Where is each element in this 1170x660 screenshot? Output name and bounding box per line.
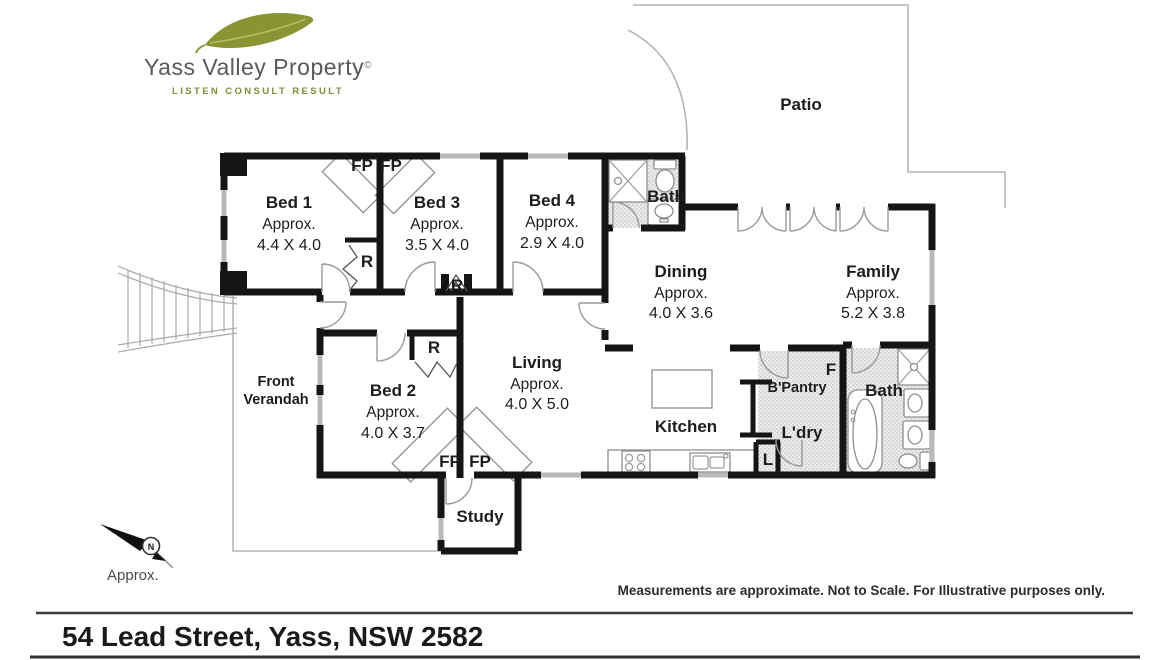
room-approx-living: Approx. bbox=[510, 376, 563, 393]
marker-robe-bed1: R bbox=[361, 252, 373, 271]
room-size-living: 4.0 X 5.0 bbox=[505, 396, 569, 413]
room-label-bath-rear: Bath bbox=[865, 381, 903, 400]
vanity-bowl-rear bbox=[908, 394, 922, 412]
french-doors-3 bbox=[840, 207, 888, 231]
room-label-kitchen: Kitchen bbox=[655, 417, 717, 436]
toilet-bowl-rear bbox=[899, 454, 917, 468]
room-approx-bed3: Approx. bbox=[410, 216, 463, 233]
marker-robe-bed3: R bbox=[451, 276, 463, 295]
marker-fp-bed2: FP bbox=[439, 452, 461, 471]
toilet-tank-front bbox=[654, 160, 676, 169]
agency-logo: Yass Valley Property© LISTEN CONSULT RES… bbox=[144, 13, 372, 97]
room-size-family: 5.2 X 3.8 bbox=[841, 305, 905, 322]
room-label-dining: Dining bbox=[655, 262, 708, 281]
french-doors-2 bbox=[790, 207, 836, 231]
room-label-bed4: Bed 4 bbox=[529, 191, 576, 210]
leaf-icon bbox=[205, 13, 313, 48]
shower-drain-rear bbox=[911, 364, 918, 371]
floor-plan-page: Yass Valley Property© LISTEN CONSULT RES… bbox=[0, 0, 1170, 660]
room-size-bed1: 4.4 X 4.0 bbox=[257, 237, 321, 254]
door-bed1 bbox=[322, 264, 350, 292]
room-label-family: Family bbox=[846, 262, 900, 281]
room-size-bed3: 3.5 X 4.0 bbox=[405, 237, 469, 254]
room-approx-family: Approx. bbox=[846, 285, 899, 302]
door-bed4 bbox=[513, 262, 543, 292]
robe-bifold-bed1 bbox=[343, 245, 357, 291]
door-bed3 bbox=[405, 262, 435, 292]
compass-north-label: N bbox=[148, 542, 155, 552]
room-label-bed2: Bed 2 bbox=[370, 381, 416, 400]
marker-fp-living: FP bbox=[469, 452, 491, 471]
room-size-bed2: 4.0 X 3.7 bbox=[361, 425, 425, 442]
door-bed2 bbox=[377, 333, 405, 361]
room-label-laundry: L'dry bbox=[782, 423, 823, 442]
logo-registered-mark: © bbox=[364, 60, 372, 71]
marker-linen: L bbox=[763, 450, 773, 469]
logo-text: Yass Valley Property© bbox=[144, 54, 372, 80]
marker-fridge: F bbox=[826, 360, 836, 379]
room-label-bed1: Bed 1 bbox=[266, 193, 312, 212]
room-approx-bed2: Approx. bbox=[366, 404, 419, 421]
leaf-stem bbox=[196, 45, 205, 53]
cabinet-bowl-rear bbox=[908, 426, 922, 444]
compass-needle-north bbox=[100, 524, 149, 551]
verandah-steps bbox=[118, 266, 237, 352]
basin-tap-front bbox=[660, 219, 668, 222]
logo-name-text: Yass Valley Property bbox=[144, 54, 364, 80]
room-label-living: Living bbox=[512, 353, 562, 372]
room-approx-bed1: Approx. bbox=[262, 216, 315, 233]
room-size-dining: 4.0 X 3.6 bbox=[649, 305, 713, 322]
corner-pier-nw bbox=[220, 153, 247, 176]
compass-approx-label: Approx. bbox=[107, 567, 159, 584]
shower-drain-front bbox=[615, 178, 622, 185]
marker-robe-bed2: R bbox=[428, 338, 440, 357]
door-entry bbox=[320, 302, 346, 328]
room-size-bed4: 2.9 X 4.0 bbox=[520, 235, 584, 252]
room-label-verandah-line1: Front bbox=[257, 374, 294, 390]
door-living bbox=[579, 303, 605, 329]
french-doors-1 bbox=[738, 207, 786, 231]
compass: N Approx. bbox=[100, 524, 173, 584]
room-label-patio: Patio bbox=[780, 95, 822, 114]
robe-bifold-bed2 bbox=[415, 362, 457, 377]
kitchen-island bbox=[652, 370, 712, 408]
room-label-bath-front: Bath bbox=[647, 187, 685, 206]
bathtub-inner bbox=[853, 399, 877, 469]
disclaimer-text: Measurements are approximate. Not to Sca… bbox=[618, 583, 1105, 598]
basin-bowl-front bbox=[655, 204, 673, 218]
marker-fp-bed1: FP bbox=[351, 156, 373, 175]
door-study bbox=[446, 478, 472, 504]
room-approx-dining: Approx. bbox=[654, 285, 707, 302]
room-approx-bed4: Approx. bbox=[525, 214, 578, 231]
room-label-bed3: Bed 3 bbox=[414, 193, 460, 212]
logo-tagline: LISTEN CONSULT RESULT bbox=[172, 86, 344, 97]
room-label-study: Study bbox=[456, 507, 504, 526]
room-label-verandah-line2: Verandah bbox=[243, 392, 308, 408]
marker-fp-bed3: FP bbox=[380, 156, 402, 175]
address-title: 54 Lead Street, Yass, NSW 2582 bbox=[62, 621, 483, 652]
room-label-pantry: B'Pantry bbox=[767, 380, 826, 396]
